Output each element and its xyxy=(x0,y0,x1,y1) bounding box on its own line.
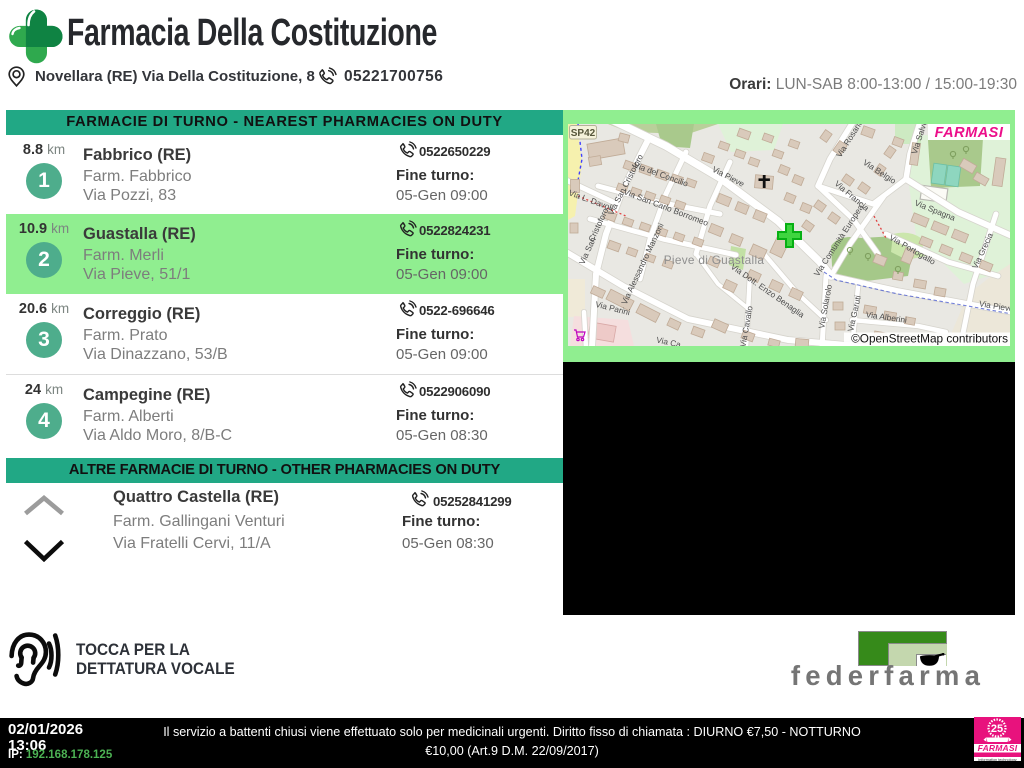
svg-text:information technology: information technology xyxy=(978,758,1016,761)
svg-text:FARMASI: FARMASI xyxy=(978,743,1018,753)
svg-text:©OpenStreetMap contributors: ©OpenStreetMap contributors xyxy=(851,332,1008,346)
svg-text:25: 25 xyxy=(991,723,1003,735)
svg-text:Pieve di Guastalla: Pieve di Guastalla xyxy=(664,253,765,267)
svg-text:SP42: SP42 xyxy=(571,128,596,139)
svg-text:FARMASI: FARMASI xyxy=(935,125,1004,141)
